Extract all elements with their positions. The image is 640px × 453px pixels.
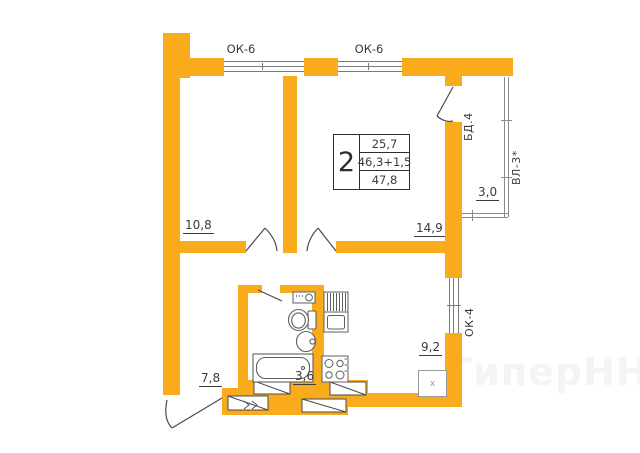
vent-shafts (228, 381, 366, 412)
stove-icon (322, 356, 348, 382)
area-kitchen: 9,2 (419, 340, 442, 356)
balcony-door-arc (437, 87, 453, 121)
spec-room-count: 2 (334, 135, 360, 189)
area-balcony: 3,0 (476, 185, 499, 201)
window-kitchen-symbol (447, 278, 461, 333)
plan-linework (0, 0, 640, 453)
washing-machine-icon (293, 292, 315, 303)
label-window-top-left: ОК-6 (214, 43, 268, 56)
label-balcony-door: БД.4 (463, 93, 475, 141)
kitchen-appliance-box: x (418, 370, 447, 397)
window-top-right-symbol (338, 62, 402, 72)
toilet-icon (289, 310, 317, 331)
window-top-left-symbol (224, 62, 304, 72)
apartment-spec-table: 2 25,7 46,3+1,5 47,8 (333, 134, 410, 190)
spec-area-sum: 46,3+1,5 (360, 153, 409, 171)
door-bathroom-leaf (258, 290, 282, 301)
door-living-arc (307, 228, 336, 251)
floor-plan: ГиперНН (0, 0, 640, 453)
label-window-top-right: ОК-6 (342, 43, 396, 56)
spec-living-area: 25,7 (360, 135, 409, 153)
door-room1-arc (246, 228, 277, 251)
sink-icon (297, 332, 316, 352)
label-kitchen-window: ОК-4 (464, 287, 476, 337)
kitchen-sink-icon (324, 292, 348, 332)
spec-total-area: 47,8 (360, 171, 409, 189)
area-hallway: 7,8 (199, 371, 222, 387)
area-bathroom: 3,6 (293, 369, 316, 385)
area-living-room: 14,9 (414, 221, 445, 237)
entrance-door-arc (166, 398, 222, 428)
area-room1: 10,8 (183, 218, 214, 234)
label-balcony-glazing: ВЛ-3* (511, 127, 523, 185)
